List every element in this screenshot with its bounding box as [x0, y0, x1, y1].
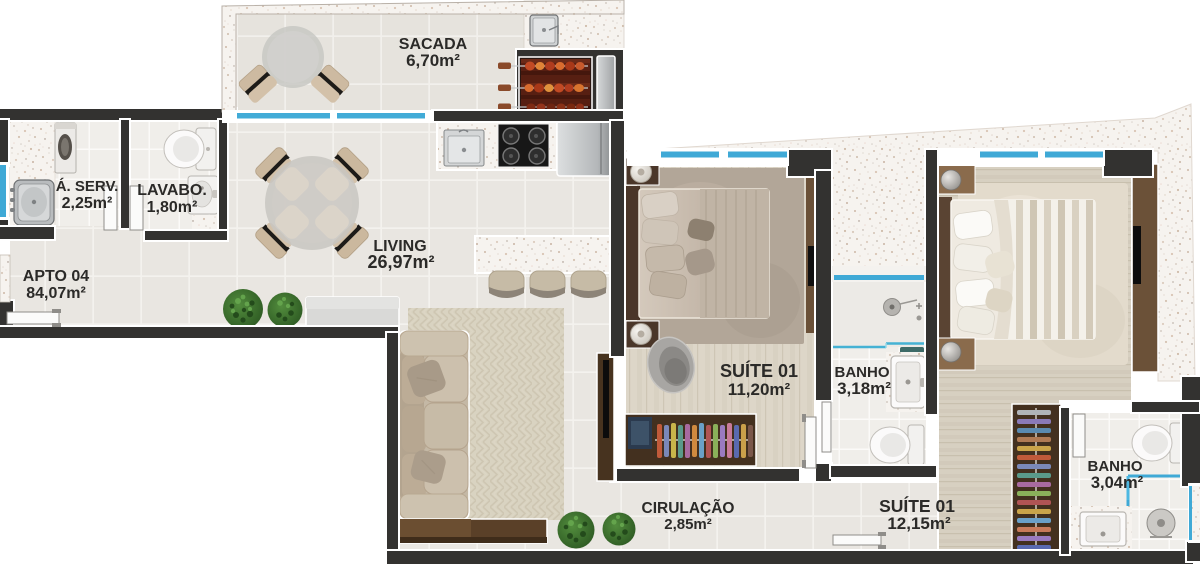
svg-text:84,07m²: 84,07m²	[26, 285, 86, 302]
svg-text:1,80m²: 1,80m²	[147, 199, 198, 216]
svg-text:12,15m²: 12,15m²	[887, 514, 951, 533]
svg-text:BANHO: BANHO	[1088, 458, 1143, 475]
svg-text:LAVABO.: LAVABO.	[137, 182, 207, 199]
svg-text:CIRULAÇÃO: CIRULAÇÃO	[642, 499, 735, 517]
svg-text:3,04m²: 3,04m²	[1091, 474, 1144, 492]
svg-text:2,85m²: 2,85m²	[664, 516, 712, 533]
svg-text:2,25m²: 2,25m²	[62, 195, 113, 212]
svg-text:3,18m²: 3,18m²	[837, 379, 891, 398]
svg-text:APTO 04: APTO 04	[23, 268, 90, 285]
svg-text:SUÍTE 01: SUÍTE 01	[879, 495, 955, 516]
svg-text:6,70m²: 6,70m²	[406, 51, 460, 70]
svg-text:Á. SERV.: Á. SERV.	[56, 178, 119, 195]
svg-text:11,20m²: 11,20m²	[728, 380, 791, 399]
svg-text:SUÍTE 01: SUÍTE 01	[720, 360, 798, 381]
svg-text:26,97m²: 26,97m²	[367, 252, 434, 272]
